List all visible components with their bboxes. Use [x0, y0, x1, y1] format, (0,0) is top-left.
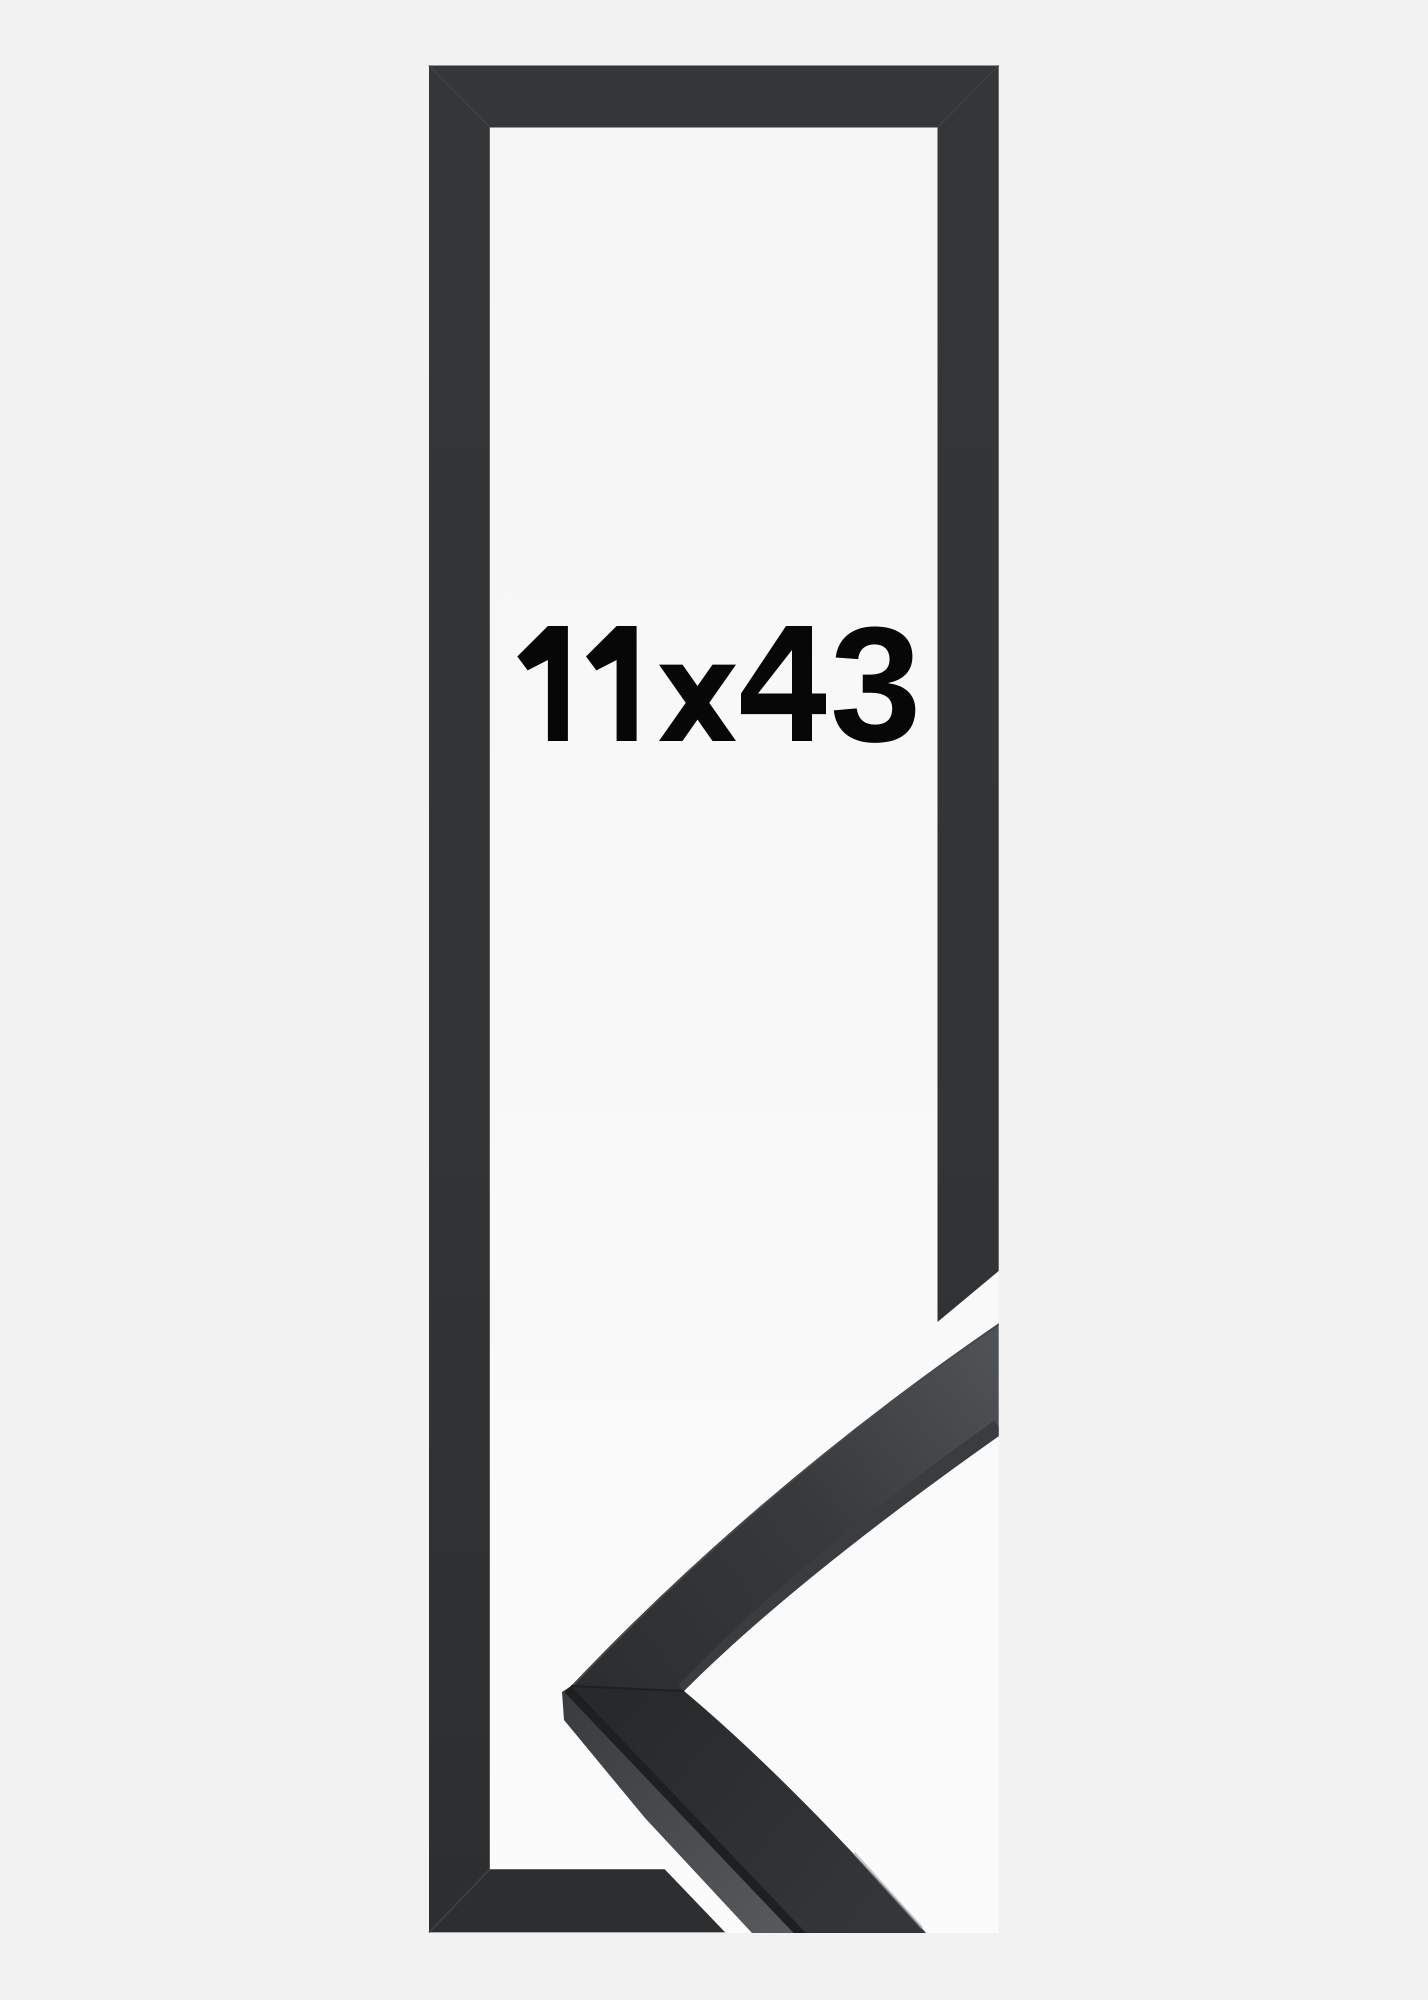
svg-text:3: 3 [830, 593, 921, 776]
